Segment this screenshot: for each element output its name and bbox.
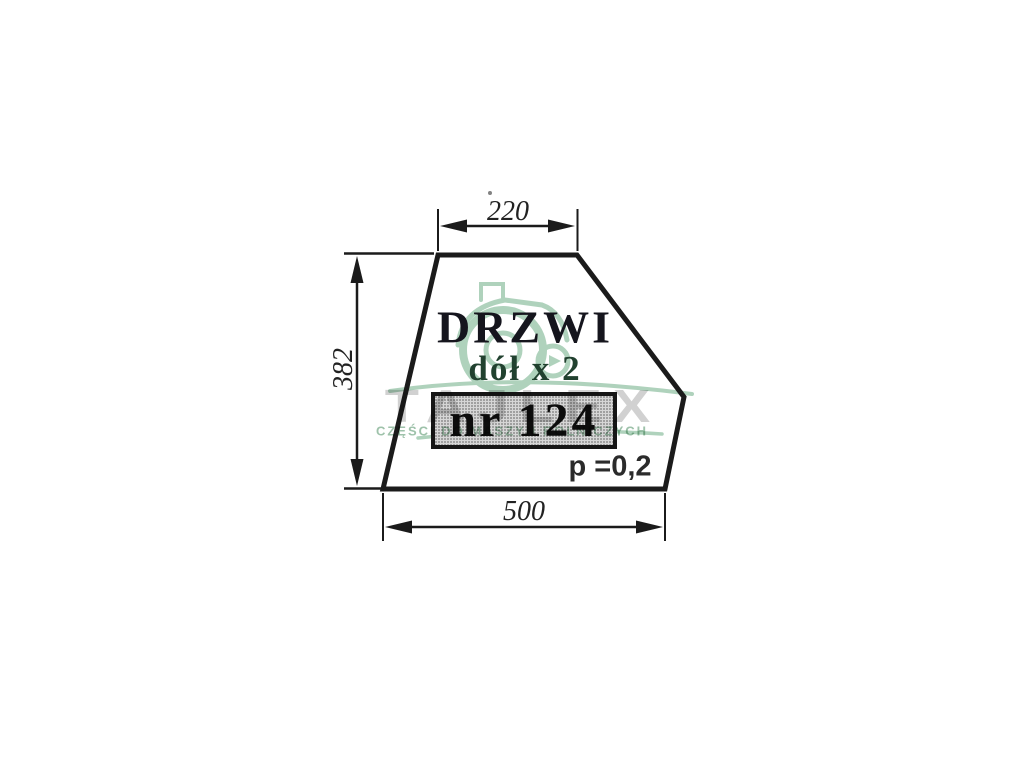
arrow-up-icon — [351, 256, 364, 283]
arrow-left-icon — [385, 521, 412, 534]
dimension-top-width: 220 — [487, 196, 529, 228]
watermark-tagline: CZĘŚCI DO MASZYN ROLNICZYCH — [376, 424, 648, 439]
dimension-bottom-width: 500 — [503, 496, 545, 528]
scan-speck — [488, 191, 492, 195]
technical-drawing-page: 220 382 500 DRZWI dół x 2 nr 124 p =0,2 … — [0, 0, 1024, 768]
arrow-right-icon — [548, 220, 575, 233]
arrow-left-icon — [440, 220, 467, 233]
arrow-right-icon — [636, 521, 663, 534]
dimension-left-height: 382 — [328, 348, 360, 390]
thickness-note: p =0,2 — [568, 451, 651, 484]
part-title: DRZWI — [437, 301, 613, 354]
arrow-down-icon — [351, 459, 364, 486]
